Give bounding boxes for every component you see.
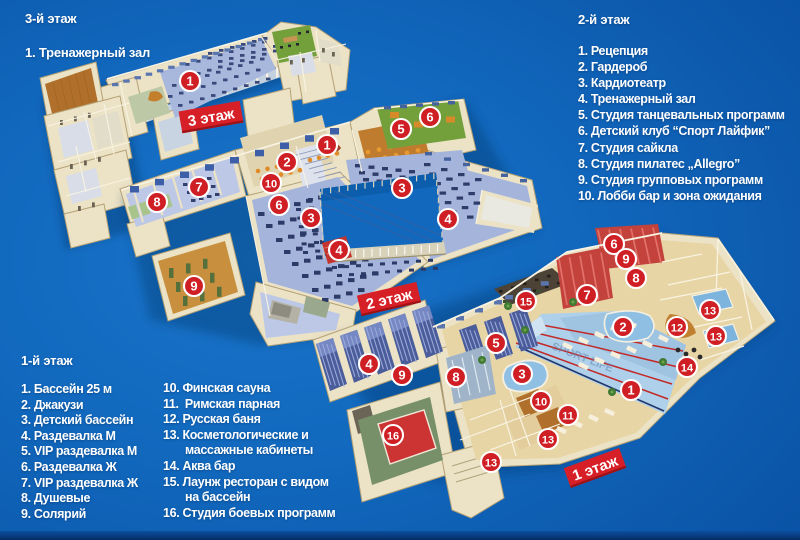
svg-text:1: 1 [186, 73, 193, 88]
svg-text:9: 9 [398, 367, 405, 382]
svg-text:8: 8 [632, 270, 639, 285]
svg-text:16: 16 [387, 430, 399, 442]
svg-text:13: 13 [704, 305, 716, 317]
svg-text:2: 2 [283, 154, 290, 169]
svg-text:13: 13 [542, 434, 554, 446]
svg-text:6: 6 [275, 197, 282, 212]
svg-text:2: 2 [619, 319, 626, 334]
svg-text:5: 5 [397, 121, 404, 136]
svg-text:14: 14 [681, 362, 694, 374]
svg-text:8: 8 [452, 369, 459, 384]
svg-text:10: 10 [535, 396, 547, 408]
svg-text:9: 9 [622, 251, 629, 266]
svg-text:6: 6 [610, 236, 617, 251]
svg-text:13: 13 [710, 331, 722, 343]
svg-text:1: 1 [323, 137, 330, 152]
svg-text:3: 3 [307, 210, 314, 225]
svg-text:9: 9 [190, 278, 197, 293]
svg-text:6: 6 [426, 109, 433, 124]
svg-text:7: 7 [583, 287, 590, 302]
svg-text:4: 4 [444, 211, 452, 226]
svg-text:10: 10 [265, 178, 277, 190]
svg-text:7: 7 [195, 179, 202, 194]
svg-text:4: 4 [365, 356, 373, 371]
svg-text:12: 12 [671, 322, 683, 334]
svg-text:8: 8 [153, 194, 160, 209]
svg-text:13: 13 [485, 457, 497, 469]
svg-text:15: 15 [520, 296, 532, 308]
svg-text:3: 3 [398, 180, 405, 195]
svg-text:3: 3 [518, 366, 525, 381]
svg-text:11: 11 [562, 410, 574, 422]
svg-text:5: 5 [492, 335, 499, 350]
svg-text:1: 1 [627, 382, 634, 397]
svg-text:4: 4 [335, 242, 343, 257]
